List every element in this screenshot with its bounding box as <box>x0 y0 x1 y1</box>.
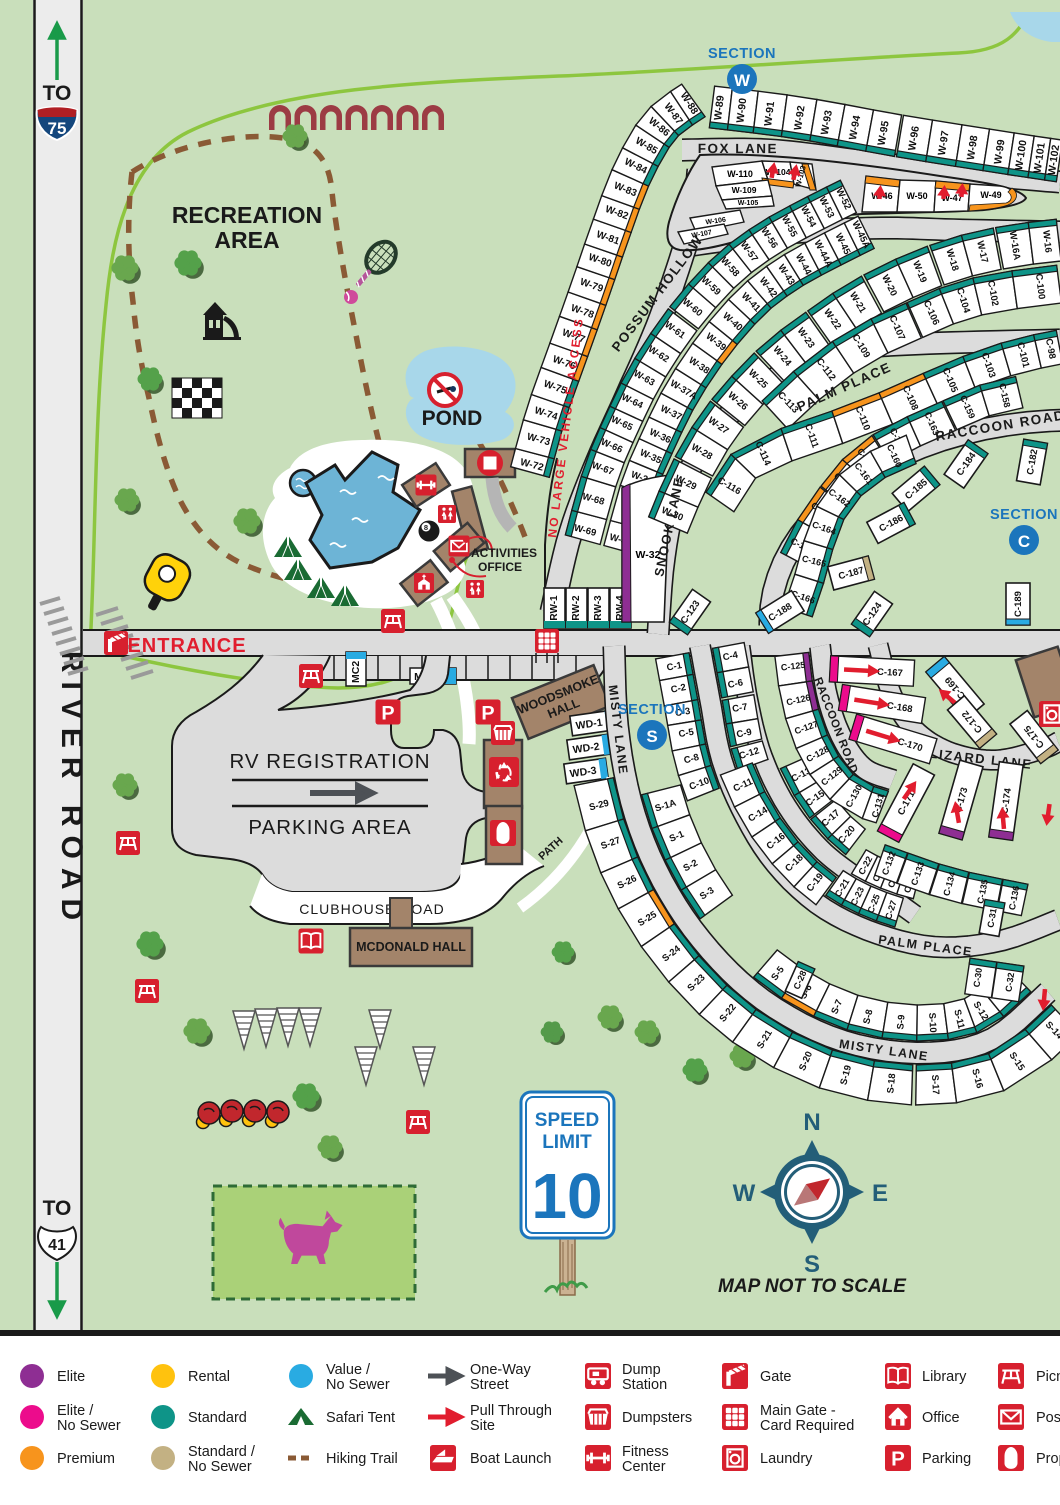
svg-text:P: P <box>381 702 394 724</box>
svg-text:P: P <box>891 1448 905 1471</box>
svg-text:S-9: S-9 <box>895 1014 907 1030</box>
svg-text:W: W <box>733 1180 756 1207</box>
svg-text:Standard: Standard <box>188 1410 247 1426</box>
svg-text:Street: Street <box>470 1377 509 1393</box>
svg-text:No Sewer: No Sewer <box>57 1418 121 1434</box>
svg-text:Dumpsters: Dumpsters <box>622 1410 692 1426</box>
svg-text:SECTION: SECTION <box>708 46 776 62</box>
svg-text:RW-1: RW-1 <box>549 595 560 621</box>
svg-text:Main Gate -: Main Gate - <box>760 1403 836 1419</box>
svg-text:No Sewer: No Sewer <box>326 1377 390 1393</box>
svg-text:MC2: MC2 <box>350 661 362 683</box>
svg-text:W: W <box>734 71 751 90</box>
svg-text:Post: Post <box>1036 1410 1060 1426</box>
svg-text:MCDONALD HALL: MCDONALD HALL <box>356 940 466 954</box>
svg-text:Office: Office <box>922 1410 960 1426</box>
svg-text:Gate: Gate <box>760 1369 791 1385</box>
svg-text:OFFICE: OFFICE <box>478 560 522 574</box>
svg-text:Value /: Value / <box>326 1362 371 1378</box>
svg-text:P: P <box>481 702 494 724</box>
svg-text:RW-2: RW-2 <box>571 595 582 621</box>
svg-text:S-10: S-10 <box>926 1012 938 1033</box>
svg-text:LIMIT: LIMIT <box>542 1132 592 1153</box>
svg-text:Prop: Prop <box>1036 1451 1060 1467</box>
svg-text:RW-3: RW-3 <box>593 595 604 621</box>
svg-text:Standard /: Standard / <box>188 1444 256 1460</box>
svg-text:Fitness: Fitness <box>622 1444 669 1460</box>
svg-text:CLUBHOUSE ROAD: CLUBHOUSE ROAD <box>299 901 444 917</box>
svg-text:41: 41 <box>48 1237 66 1254</box>
svg-text:W-105: W-105 <box>738 200 759 207</box>
svg-text:Rental: Rental <box>188 1369 230 1385</box>
svg-text:8: 8 <box>424 523 428 532</box>
svg-text:SECTION: SECTION <box>618 702 686 718</box>
svg-text:C-167: C-167 <box>877 667 903 679</box>
svg-text:Library: Library <box>922 1369 967 1385</box>
svg-text:ENTRANCE: ENTRANCE <box>127 635 246 657</box>
svg-text:AREA: AREA <box>214 227 279 253</box>
svg-text:E: E <box>872 1180 888 1207</box>
svg-text:Pull Through: Pull Through <box>470 1403 552 1419</box>
svg-text:75: 75 <box>48 119 67 138</box>
svg-text:RV REGISTRATION: RV REGISTRATION <box>229 750 430 773</box>
svg-text:No Sewer: No Sewer <box>188 1459 252 1475</box>
svg-text:TO: TO <box>43 82 72 105</box>
svg-text:TO: TO <box>43 1197 72 1220</box>
svg-text:N: N <box>803 1109 820 1136</box>
svg-text:C: C <box>1018 532 1030 551</box>
svg-text:FOX LANE: FOX LANE <box>698 141 778 156</box>
svg-text:Hiking Trail: Hiking Trail <box>326 1451 398 1467</box>
svg-text:Premium: Premium <box>57 1451 115 1467</box>
svg-text:Site: Site <box>470 1418 495 1434</box>
svg-text:PARKING AREA: PARKING AREA <box>248 816 411 839</box>
svg-text:Dump: Dump <box>622 1362 661 1378</box>
svg-text:Safari Tent: Safari Tent <box>326 1410 395 1426</box>
svg-text:RECREATION: RECREATION <box>172 202 322 228</box>
svg-text:MAP NOT TO SCALE: MAP NOT TO SCALE <box>718 1276 907 1297</box>
svg-text:SPEED: SPEED <box>535 1110 599 1131</box>
svg-text:S-18: S-18 <box>885 1073 898 1094</box>
svg-text:Laundry: Laundry <box>760 1451 813 1467</box>
svg-text:Picn: Picn <box>1036 1369 1060 1385</box>
svg-text:10: 10 <box>531 1160 602 1232</box>
svg-text:W-109: W-109 <box>732 185 757 195</box>
svg-text:Center: Center <box>622 1459 666 1475</box>
svg-text:S: S <box>646 727 657 746</box>
svg-text:W-110: W-110 <box>727 169 753 179</box>
svg-text:Elite: Elite <box>57 1369 85 1385</box>
svg-text:POND: POND <box>422 407 483 430</box>
svg-text:RIVER ROAD: RIVER ROAD <box>55 651 88 929</box>
svg-text:W-49: W-49 <box>980 190 1001 200</box>
svg-text:One-Way: One-Way <box>470 1362 531 1378</box>
svg-text:S-17: S-17 <box>929 1074 941 1095</box>
svg-text:W-50: W-50 <box>906 191 927 201</box>
svg-text:SECTION: SECTION <box>990 507 1058 523</box>
svg-text:S: S <box>804 1251 820 1278</box>
svg-text:Boat Launch: Boat Launch <box>470 1451 551 1467</box>
svg-text:Elite /: Elite / <box>57 1403 94 1419</box>
svg-text:C-189: C-189 <box>1013 591 1024 617</box>
svg-text:Parking: Parking <box>922 1451 971 1467</box>
svg-text:Card Required: Card Required <box>760 1418 854 1434</box>
svg-text:Station: Station <box>622 1377 667 1393</box>
svg-text:ACTIVITIES: ACTIVITIES <box>471 546 537 560</box>
